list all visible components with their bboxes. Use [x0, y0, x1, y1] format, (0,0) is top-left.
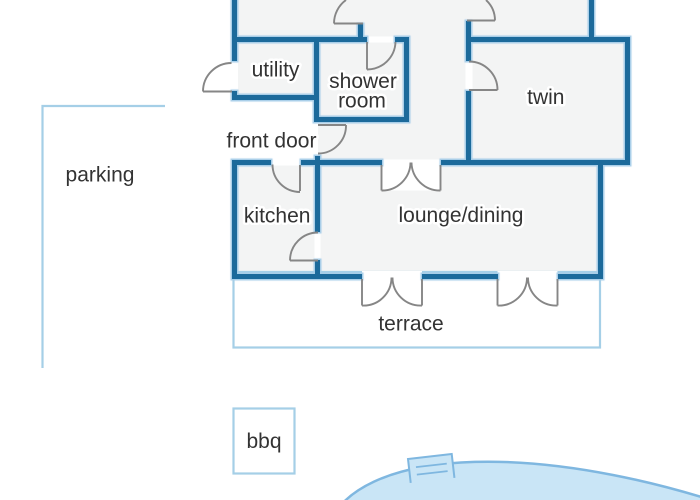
svg-text:lounge/dining: lounge/dining: [399, 204, 524, 227]
svg-text:room: room: [338, 90, 386, 113]
svg-text:terrace: terrace: [378, 313, 443, 336]
svg-text:bbq: bbq: [246, 430, 281, 453]
svg-text:twin: twin: [527, 86, 564, 109]
svg-text:front door: front door: [227, 130, 317, 153]
svg-text:kitchen: kitchen: [244, 205, 311, 228]
svg-text:parking: parking: [66, 164, 135, 187]
svg-text:utility: utility: [252, 59, 300, 82]
